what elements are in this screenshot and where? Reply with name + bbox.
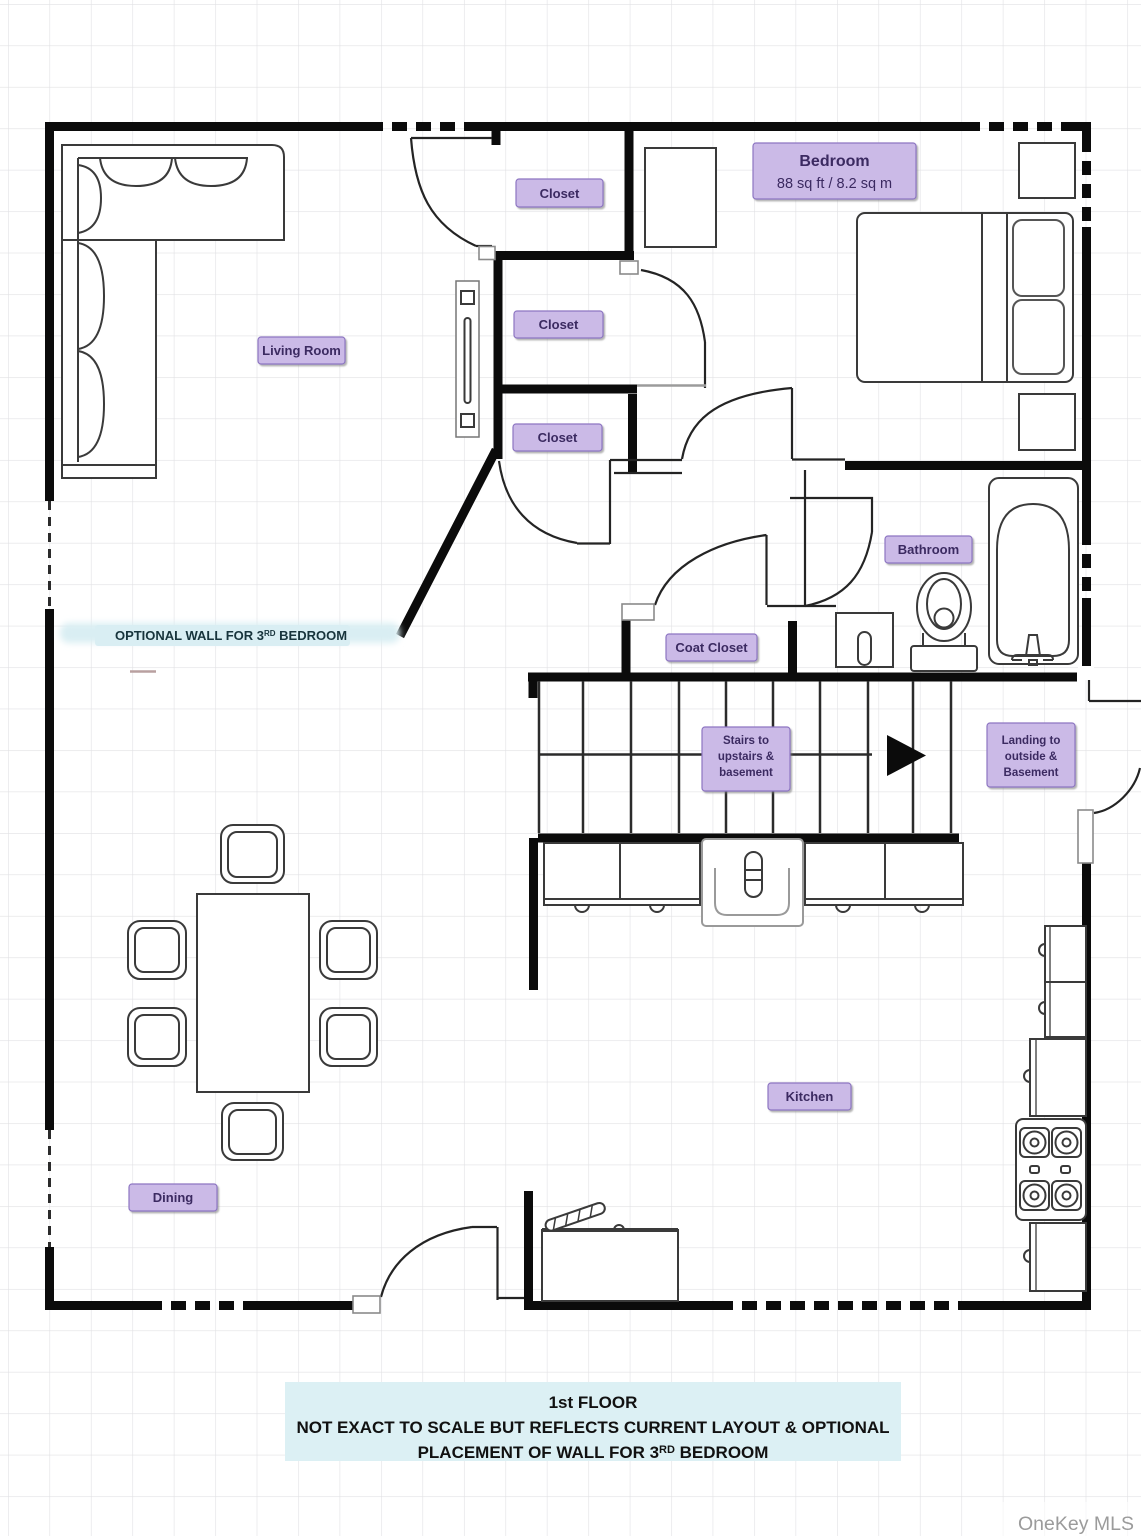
svg-text:Landing to: Landing to	[1002, 735, 1061, 747]
svg-text:NOT EXACT TO SCALE BUT REFLECT: NOT EXACT TO SCALE BUT REFLECTS CURRENT …	[296, 1418, 889, 1437]
svg-text:outside &: outside &	[1005, 751, 1057, 763]
svg-text:1st FLOOR: 1st FLOOR	[549, 1393, 638, 1412]
svg-text:Bathroom: Bathroom	[898, 542, 959, 557]
svg-text:Coat Closet: Coat Closet	[675, 640, 748, 655]
svg-text:OPTIONAL WALL FOR 3RD BEDROOM: OPTIONAL WALL FOR 3RD BEDROOM	[115, 628, 347, 643]
svg-text:Living Room: Living Room	[262, 343, 341, 358]
svg-text:PLACEMENT OF WALL FOR 3RD BEDR: PLACEMENT OF WALL FOR 3RD BEDROOM	[418, 1443, 769, 1462]
svg-text:Closet: Closet	[540, 186, 580, 201]
svg-text:88 sq ft / 8.2 sq m: 88 sq ft / 8.2 sq m	[777, 176, 892, 192]
svg-text:Bedroom: Bedroom	[799, 153, 869, 170]
svg-text:OneKey MLS: OneKey MLS	[1018, 1513, 1134, 1535]
svg-text:Closet: Closet	[539, 317, 579, 332]
svg-text:Basement: Basement	[1004, 767, 1059, 779]
svg-text:basement: basement	[719, 767, 773, 779]
svg-text:Closet: Closet	[538, 430, 578, 445]
svg-text:Dining: Dining	[153, 1190, 193, 1205]
svg-text:upstairs &: upstairs &	[718, 751, 774, 763]
svg-text:Stairs to: Stairs to	[723, 735, 769, 747]
svg-text:Kitchen: Kitchen	[786, 1089, 834, 1104]
